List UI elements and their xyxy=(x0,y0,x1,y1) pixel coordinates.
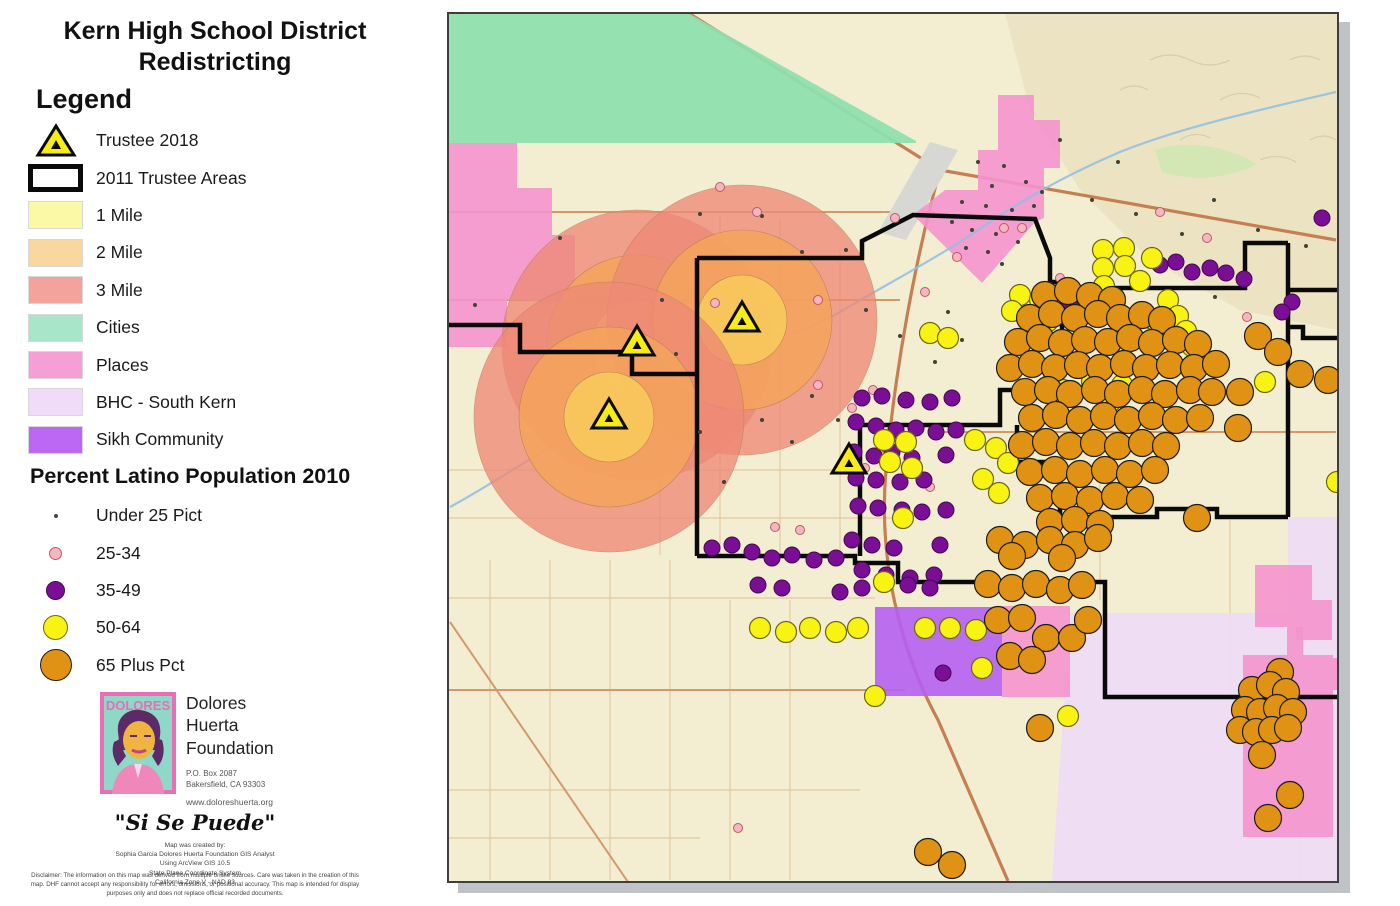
dot-25-34 xyxy=(734,824,743,833)
dot-25-34 xyxy=(953,253,962,262)
dot-under-25 xyxy=(950,220,954,224)
dot-65-plus xyxy=(1157,352,1184,379)
dot-35-49 xyxy=(704,540,720,556)
dot-65-plus xyxy=(1129,430,1156,457)
legend-items: Trustee 2018 2011 Trustee Areas 1 Mile 2… xyxy=(28,122,246,459)
dot-65-plus xyxy=(1027,485,1054,512)
trustee-2018-icon xyxy=(28,124,83,158)
dot-under-25 xyxy=(1090,198,1094,202)
dot-under-25 xyxy=(1040,190,1044,194)
dot-25-34 xyxy=(921,288,930,297)
dot-item-label: 50-64 xyxy=(96,617,141,638)
dot-50-64 xyxy=(915,618,936,639)
dot-25-34 xyxy=(1243,313,1252,322)
org-block: DOLORES Dolores Huerta Foundation P.O. B… xyxy=(100,692,326,807)
dot-25-34 xyxy=(796,526,805,535)
dot-25-34 xyxy=(848,404,857,413)
under-25-dot-icon xyxy=(28,514,83,518)
dhf-logo: DOLORES xyxy=(100,692,176,794)
dot-35-49 xyxy=(938,502,954,518)
legend-item-trustee-areas: 2011 Trustee Areas xyxy=(28,159,246,196)
dot-35-49 xyxy=(870,500,886,516)
dot-under-25 xyxy=(836,418,840,422)
dot-65-plus xyxy=(1043,402,1070,429)
dot-65-plus xyxy=(1187,405,1214,432)
dot-35-49 xyxy=(948,422,964,438)
dot-under-25 xyxy=(810,394,814,398)
dot-50-64 xyxy=(1130,271,1151,292)
org-name-line: Dolores xyxy=(186,692,326,714)
dot-under-25 xyxy=(976,160,980,164)
dot-25-34 xyxy=(1203,234,1212,243)
dot-65-plus xyxy=(1287,361,1314,388)
dot-65-plus xyxy=(1129,377,1156,404)
dot-65-plus xyxy=(1082,377,1109,404)
dot-50-64 xyxy=(1058,706,1079,727)
dot-under-25 xyxy=(698,430,702,434)
dot-25-34 xyxy=(814,381,823,390)
dot-under-25 xyxy=(1000,262,1004,266)
legend-item-bhc: BHC - South Kern xyxy=(28,384,246,421)
dot-35-49 xyxy=(744,544,760,560)
dot-item-35-49: 35-49 xyxy=(28,572,202,609)
dot-under-25 xyxy=(1058,138,1062,142)
dot-65-plus xyxy=(1075,607,1102,634)
dot-35-49 xyxy=(938,447,954,463)
dot-35-49 xyxy=(832,584,848,600)
dot-under-25 xyxy=(1212,198,1216,202)
dot-legend-items: Under 25 Pict 25-34 35-49 50-64 65 Plus … xyxy=(28,497,202,684)
org-address: P.O. Box 2087 Bakersfield, CA 93303 xyxy=(186,768,326,790)
dot-35-49 xyxy=(1168,254,1184,270)
dot-35-49 xyxy=(1184,264,1200,280)
dot-50-64 xyxy=(902,458,923,479)
dot-50-64 xyxy=(848,618,869,639)
dot-under-25 xyxy=(990,184,994,188)
dot-25-34 xyxy=(716,183,725,192)
dot-25-34 xyxy=(711,299,720,308)
dot-65-plus xyxy=(1127,487,1154,514)
dot-under-25 xyxy=(946,310,950,314)
dot-item-50-64: 50-64 xyxy=(28,609,202,646)
dot-under-25 xyxy=(1002,164,1006,168)
dot-35-49 xyxy=(932,537,948,553)
50-64-dot-icon xyxy=(28,615,83,640)
dot-under-25 xyxy=(1016,240,1020,244)
dot-35-49 xyxy=(774,580,790,596)
dot-25-34 xyxy=(753,208,762,217)
title-line-2: Redistricting xyxy=(10,47,420,78)
dot-item-65-plus: 65 Plus Pct xyxy=(28,647,202,684)
dot-65-plus xyxy=(999,543,1026,570)
dot-under-25 xyxy=(760,418,764,422)
dot-50-64 xyxy=(800,618,821,639)
dot-35-49 xyxy=(922,394,938,410)
dot-35-49 xyxy=(844,532,860,548)
dot-35-49 xyxy=(750,577,766,593)
dot-65-plus xyxy=(1052,483,1079,510)
dot-65-plus xyxy=(975,571,1002,598)
dot-65-plus xyxy=(1049,545,1076,572)
legend-item-places: Places xyxy=(28,346,246,383)
legend-item-label: Places xyxy=(96,355,149,376)
dot-65-plus xyxy=(1042,457,1069,484)
title-line-1: Kern High School District xyxy=(10,16,420,47)
dot-35-49 xyxy=(922,580,938,596)
dot-50-64 xyxy=(874,430,895,451)
map-disclaimer: Disclaimer: The information on this map … xyxy=(28,872,362,899)
map-canvas[interactable] xyxy=(447,12,1339,883)
dot-35-49 xyxy=(854,390,870,406)
dot-35-49 xyxy=(864,537,880,553)
25-34-dot-icon xyxy=(28,547,83,560)
dot-65-plus xyxy=(1203,351,1230,378)
dot-item-label: 25-34 xyxy=(96,543,141,564)
dot-50-64 xyxy=(966,620,987,641)
dot-50-64 xyxy=(1142,248,1163,269)
dot-65-plus xyxy=(915,839,942,866)
legend-item-label: 3 Mile xyxy=(96,280,143,301)
dot-65-plus xyxy=(1057,433,1084,460)
dot-65-plus xyxy=(1225,415,1252,442)
dot-under-25 xyxy=(1304,244,1308,248)
legend-item-label: Trustee 2018 xyxy=(96,130,198,151)
trustee-areas-swatch xyxy=(28,164,83,192)
dot-under-25 xyxy=(1010,208,1014,212)
dot-65-plus xyxy=(1102,483,1129,510)
dot-35-49 xyxy=(806,552,822,568)
dot-65-plus xyxy=(1199,379,1226,406)
org-name-line: Huerta xyxy=(186,714,326,736)
dot-65-plus xyxy=(1153,433,1180,460)
dot-under-25 xyxy=(1024,180,1028,184)
dot-35-49 xyxy=(784,547,800,563)
bhc-swatch xyxy=(28,388,83,416)
legend-item-label: Cities xyxy=(96,317,140,338)
dot-50-64 xyxy=(874,572,895,593)
legend-item-cities: Cities xyxy=(28,309,246,346)
legend-item-sikh: Sikh Community xyxy=(28,421,246,458)
dot-under-25 xyxy=(1213,295,1217,299)
dot-65-plus xyxy=(1139,403,1166,430)
dot-item-label: 65 Plus Pct xyxy=(96,655,185,676)
legend-panel: Kern High School District Redistricting … xyxy=(0,0,447,906)
dot-35-49 xyxy=(848,414,864,430)
sikh-swatch xyxy=(28,426,83,454)
dot-65-plus xyxy=(1085,525,1112,552)
dot-25-34 xyxy=(814,296,823,305)
dot-50-64 xyxy=(880,452,901,473)
dot-under-25 xyxy=(994,232,998,236)
dot-50-64 xyxy=(938,328,959,349)
legend-item-1-mile: 1 Mile xyxy=(28,197,246,234)
dot-35-49 xyxy=(854,562,870,578)
dot-item-label: 35-49 xyxy=(96,580,141,601)
dot-65-plus xyxy=(1019,351,1046,378)
latino-population-heading: Percent Latino Population 2010 xyxy=(30,464,350,489)
dot-65-plus xyxy=(1027,715,1054,742)
dot-35-49 xyxy=(1202,260,1218,276)
dot-65-plus xyxy=(1009,432,1036,459)
dot-65-plus xyxy=(1139,330,1166,357)
map-svg xyxy=(449,14,1337,881)
dot-under-25 xyxy=(660,298,664,302)
dot-50-64 xyxy=(893,508,914,529)
dot-65-plus xyxy=(1265,339,1292,366)
dot-under-25 xyxy=(473,303,477,307)
dot-65-plus xyxy=(1275,715,1302,742)
dot-25-34 xyxy=(1018,224,1027,233)
org-address-line: Bakersfield, CA 93303 xyxy=(186,779,326,790)
dot-35-49 xyxy=(1314,210,1330,226)
mile-3-swatch xyxy=(28,276,83,304)
dot-65-plus xyxy=(1227,379,1254,406)
dot-35-49 xyxy=(1218,265,1234,281)
dot-under-25 xyxy=(698,212,702,216)
dot-under-25 xyxy=(933,360,937,364)
mile-1-swatch xyxy=(28,201,83,229)
legend-item-label: 2 Mile xyxy=(96,242,143,263)
dot-under-25 xyxy=(964,246,968,250)
dot-under-25 xyxy=(970,228,974,232)
legend-item-3-mile: 3 Mile xyxy=(28,272,246,309)
dot-under-25 xyxy=(986,250,990,254)
dot-65-plus xyxy=(1255,805,1282,832)
dot-35-49 xyxy=(900,577,916,593)
65-plus-dot-icon xyxy=(28,649,83,681)
dot-35-49 xyxy=(928,424,944,440)
poster: { "title": {"line1": "Kern High School D… xyxy=(0,0,1400,906)
dot-65-plus xyxy=(1039,301,1066,328)
dot-35-49 xyxy=(1274,304,1290,320)
dot-65-plus xyxy=(1069,572,1096,599)
dot-50-64 xyxy=(989,483,1010,504)
dot-65-plus xyxy=(1092,457,1119,484)
dot-65-plus xyxy=(1023,571,1050,598)
dot-25-34 xyxy=(1156,208,1165,217)
dot-65-plus xyxy=(1249,742,1276,769)
dot-50-64 xyxy=(940,618,961,639)
org-name-line: Foundation xyxy=(186,737,326,759)
dot-under-25 xyxy=(984,204,988,208)
dot-35-49 xyxy=(764,550,780,566)
dot-35-49 xyxy=(935,665,951,681)
dot-under-25 xyxy=(960,338,964,342)
dot-65-plus xyxy=(1115,407,1142,434)
dot-65-plus xyxy=(1019,647,1046,674)
dot-65-plus xyxy=(1062,507,1089,534)
dot-65-plus xyxy=(999,575,1026,602)
dot-65-plus xyxy=(939,852,966,879)
dot-65-plus xyxy=(1009,605,1036,632)
dot-35-49 xyxy=(944,390,960,406)
dot-35-49 xyxy=(914,504,930,520)
dot-50-64 xyxy=(972,658,993,679)
dot-35-49 xyxy=(874,388,890,404)
dot-25-34 xyxy=(1000,224,1009,233)
dot-under-25 xyxy=(844,248,848,252)
dot-under-25 xyxy=(674,352,678,356)
page-title: Kern High School District Redistricting xyxy=(10,16,420,79)
legend-item-label: 1 Mile xyxy=(96,205,143,226)
org-website[interactable]: www.doloreshuerta.org xyxy=(186,797,326,807)
org-text: Dolores Huerta Foundation P.O. Box 2087 … xyxy=(186,692,326,807)
dot-65-plus xyxy=(1033,429,1060,456)
dot-item-label: Under 25 Pict xyxy=(96,505,202,526)
dot-under-25 xyxy=(800,250,804,254)
dot-65-plus xyxy=(1277,782,1304,809)
dot-under-25 xyxy=(1032,204,1036,208)
dot-65-plus xyxy=(1017,459,1044,486)
dot-35-49 xyxy=(868,472,884,488)
dot-25-34 xyxy=(771,523,780,532)
dot-65-plus xyxy=(1019,405,1046,432)
dot-50-64 xyxy=(865,686,886,707)
dot-35-49 xyxy=(724,537,740,553)
dot-under-25 xyxy=(790,440,794,444)
legend-heading: Legend xyxy=(36,84,132,115)
dot-65-plus xyxy=(1105,433,1132,460)
dot-under-25 xyxy=(1134,212,1138,216)
dot-50-64 xyxy=(896,432,917,453)
legend-item-label: BHC - South Kern xyxy=(96,392,236,413)
dot-35-49 xyxy=(850,498,866,514)
org-motto: "Si Se Puede" xyxy=(55,810,335,835)
credit-line: Sophia Garcia Dolores Huerta Foundation … xyxy=(40,850,350,859)
dot-under-25 xyxy=(558,236,562,240)
mile-2-swatch xyxy=(28,239,83,267)
dot-under-25 xyxy=(864,308,868,312)
dot-65-plus xyxy=(1091,403,1118,430)
dot-50-64 xyxy=(750,618,771,639)
dot-under-25 xyxy=(1180,232,1184,236)
dot-65-plus xyxy=(1081,430,1108,457)
org-name: Dolores Huerta Foundation xyxy=(186,692,326,759)
dot-50-64 xyxy=(965,430,986,451)
dot-under-25 xyxy=(898,334,902,338)
region-sikh-purple xyxy=(875,607,1002,696)
dot-35-49 xyxy=(886,540,902,556)
dot-under-25 xyxy=(1256,228,1260,232)
dot-50-64 xyxy=(1255,372,1276,393)
legend-item-trustee-2018: Trustee 2018 xyxy=(28,122,246,159)
cities-swatch xyxy=(28,314,83,342)
35-49-dot-icon xyxy=(28,581,83,600)
legend-item-label: 2011 Trustee Areas xyxy=(96,168,246,189)
dot-50-64 xyxy=(826,622,847,643)
dot-35-49 xyxy=(1236,271,1252,287)
dot-35-49 xyxy=(898,392,914,408)
dot-50-64 xyxy=(776,622,797,643)
org-address-line: P.O. Box 2087 xyxy=(186,768,326,779)
dot-65-plus xyxy=(1142,457,1169,484)
dot-65-plus xyxy=(1067,407,1094,434)
dot-65-plus xyxy=(1315,367,1338,394)
dot-item-under-25: Under 25 Pict xyxy=(28,497,202,534)
places-swatch xyxy=(28,351,83,379)
dot-35-49 xyxy=(828,550,844,566)
dot-under-25 xyxy=(1116,160,1120,164)
dot-65-plus xyxy=(1184,505,1211,532)
dot-item-25-34: 25-34 xyxy=(28,534,202,571)
dot-65-plus xyxy=(985,607,1012,634)
dot-under-25 xyxy=(960,200,964,204)
dot-35-49 xyxy=(854,580,870,596)
credit-line: Map was created by: xyxy=(40,841,350,850)
credit-line: Using ArcView GIS 10.5 xyxy=(40,859,350,868)
dot-65-plus xyxy=(1163,407,1190,434)
legend-item-2-mile: 2 Mile xyxy=(28,234,246,271)
dot-under-25 xyxy=(722,480,726,484)
legend-item-label: Sikh Community xyxy=(96,429,223,450)
dot-25-34 xyxy=(891,214,900,223)
